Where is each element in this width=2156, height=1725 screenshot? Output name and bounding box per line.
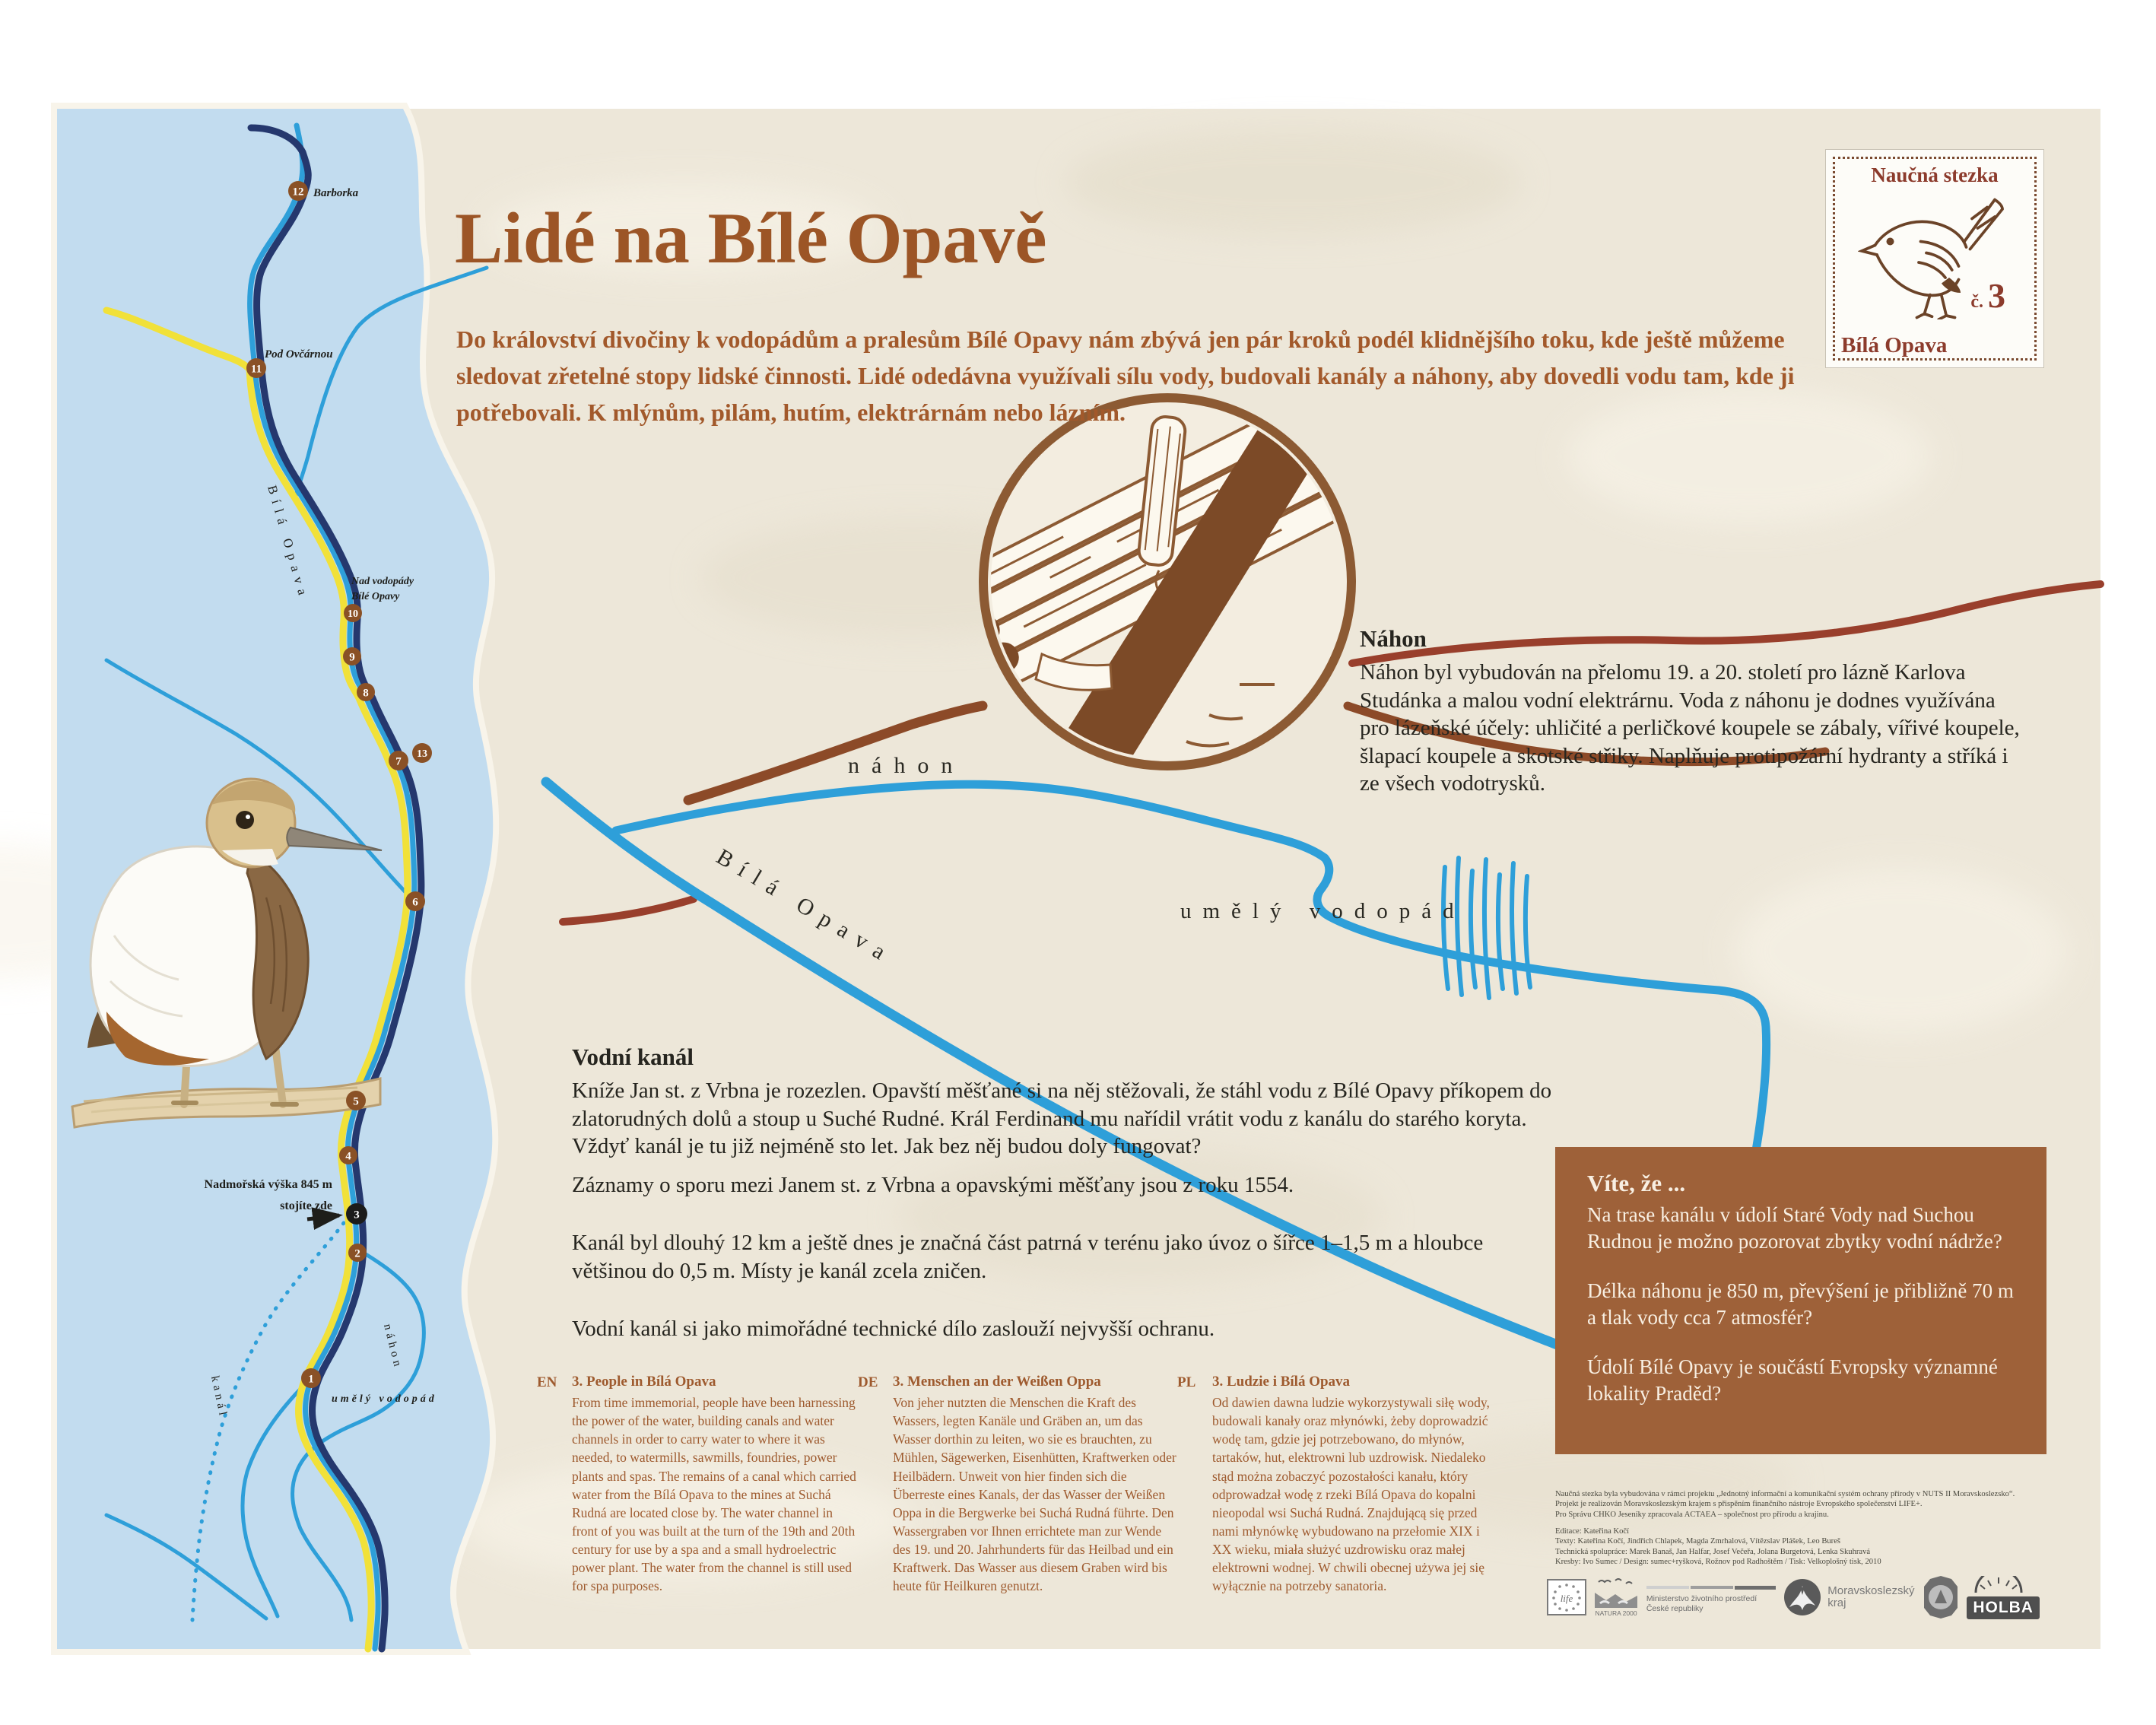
- credits-line: Pro Správu CHKO Jeseníky zpracovala ACTA…: [1555, 1510, 2057, 1520]
- translation-heading-de: 3. Menschen an der Weißen Oppa: [893, 1374, 1177, 1390]
- map-label-barborka: Barborka: [313, 187, 359, 199]
- life-logo-text: life: [1561, 1593, 1573, 1604]
- stop-number: 12: [293, 186, 304, 198]
- translation-column-en: EN 3. People in Bílá Opava From time imm…: [537, 1374, 856, 1596]
- mzp-logo-line2: České republiky: [1646, 1604, 1776, 1614]
- intro-paragraph: Do království divočiny k vodopádům a pra…: [456, 321, 1818, 430]
- lang-code-pl: PL: [1177, 1374, 1195, 1391]
- translation-heading-pl: 3. Ludzie i Bílá Opava: [1212, 1374, 1497, 1390]
- stop-number: 6: [412, 896, 418, 908]
- holba-logo: HOLBA: [1967, 1576, 2040, 1619]
- stop-number: 13: [417, 748, 427, 760]
- sketch-label-nahon: náhon: [848, 753, 964, 778]
- translation-heading-en: 3. People in Bílá Opava: [572, 1374, 856, 1390]
- stamp-number-value: 3: [1988, 276, 2005, 315]
- vodni-kanal-paragraph-1: Kníže Jan st. z Vrbna je rozezlen. Opavš…: [572, 1077, 1557, 1161]
- map-stop-6: 6: [405, 891, 425, 911]
- stamp-river-name: Bílá Opava: [1841, 333, 1947, 358]
- credits-line: Naučná stezka byla vybudována v rámci pr…: [1555, 1489, 2057, 1499]
- stop-number: 1: [308, 1373, 314, 1385]
- msk-logo-line1: Moravskoslezský: [1827, 1585, 1914, 1597]
- trail-stamp: Naučná stezka č. 3 Bílá Opava: [1825, 149, 2044, 368]
- mzp-logo-line1: Ministerstvo životního prostředí: [1646, 1594, 1776, 1604]
- chko-jeseniky-seal: [1921, 1574, 1961, 1620]
- credits-line: Technická spolupráce: Marek Banaš, Jan H…: [1555, 1547, 2057, 1557]
- stop-number: 5: [353, 1095, 359, 1107]
- trail-info-panel: 12 11 10 9 8 7 13 6 5 4 3 2 1 Barborka P…: [0, 0, 2156, 1725]
- map-stop-8: 8: [357, 683, 375, 701]
- map-stop-11: 11: [246, 358, 266, 378]
- nahon-body: Náhon byl vybudován na přelomu 19. a 20.…: [1360, 659, 2021, 798]
- natura-logo-text: NATURA 2000: [1596, 1609, 1637, 1617]
- map-stop-9: 9: [343, 647, 361, 666]
- map-stop-7: 7: [389, 751, 408, 770]
- life-logo: life: [1547, 1579, 1586, 1615]
- map-stop-13: 13: [412, 743, 432, 763]
- vodni-kanal-heading: Vodní kanál: [572, 1044, 1557, 1071]
- stop-number: 9: [349, 651, 355, 663]
- holba-logo-text: HOLBA: [1967, 1596, 2040, 1619]
- nahon-heading: Náhon: [1360, 625, 2021, 653]
- partner-logos-row: life NATURA 2000 Ministerstvo životního …: [1547, 1571, 2040, 1623]
- stop-number: 11: [251, 363, 262, 375]
- translation-body-en: From time immemorial, people have been h…: [572, 1393, 856, 1596]
- stop-number: 4: [345, 1150, 351, 1162]
- vodni-kanal-paragraph-3: Kanál byl dlouhý 12 km a ještě dnes je z…: [572, 1229, 1557, 1285]
- map-label-pod-ovcarnou: Pod Ovčárnou: [265, 348, 333, 361]
- map-stop-10: 10: [344, 604, 362, 622]
- natura-2000-logo: NATURA 2000: [1592, 1577, 1640, 1617]
- nahon-section: Náhon Náhon byl vybudován na přelomu 19.…: [1360, 625, 2021, 798]
- did-you-know-q1: Na trase kanálu v údolí Staré Vody nad S…: [1587, 1202, 2016, 1255]
- map-stop-12: 12: [288, 181, 308, 201]
- stop-number: 8: [363, 687, 369, 699]
- credits-block: Naučná stezka byla vybudována v rámci pr…: [1555, 1489, 2057, 1567]
- lang-code-de: DE: [858, 1374, 878, 1391]
- map-stop-3-you-are-here: 3: [346, 1203, 367, 1225]
- did-you-know-q2: Délka náhonu je 850 m, převýšení je přib…: [1587, 1278, 2016, 1331]
- mzp-logo: Ministerstvo životního prostředí České r…: [1646, 1580, 1776, 1614]
- stop-number: 7: [395, 755, 402, 767]
- sketch-label-umely-vodopad: umělý vodopád: [1180, 899, 1465, 923]
- map-stop-1: 1: [301, 1368, 321, 1388]
- map-stop-2: 2: [348, 1244, 367, 1262]
- map-label-umely-vodopad: umělý vodopád: [332, 1393, 437, 1405]
- map-label-nad-vodopady-2: Bílé Opavy: [351, 591, 400, 602]
- stop-number: 3: [354, 1209, 360, 1221]
- stop-number: 2: [354, 1247, 360, 1260]
- credits-line: Projekt je realizován Moravskoslezským k…: [1555, 1499, 2057, 1509]
- translation-body-pl: Od dawien dawna ludzie wykorzystywali si…: [1212, 1393, 1497, 1596]
- did-you-know-box: Víte, že ... Na trase kanálu v údolí Sta…: [1555, 1147, 2046, 1454]
- page-title: Lidé na Bílé Opavě: [455, 196, 1047, 280]
- vodni-kanal-section: Vodní kanál Kníže Jan st. z Vrbna je roz…: [572, 1044, 1557, 1343]
- lang-code-en: EN: [537, 1374, 557, 1391]
- did-you-know-q3: Údolí Bílé Opavy je součástí Evropsky vý…: [1587, 1354, 2016, 1407]
- map-label-altitude: Nadmořská výška 845 m: [205, 1178, 333, 1191]
- map-label-you-are-here: stojíte zde: [280, 1199, 332, 1212]
- map-label-nad-vodopady-1: Nad vodopády: [351, 576, 414, 587]
- map-stop-5: 5: [346, 1091, 366, 1110]
- credits-line: Kresby: Ivo Sumec / Design: sumec+ryškov…: [1555, 1557, 2057, 1567]
- stop-number: 10: [348, 608, 358, 620]
- vodni-kanal-paragraph-2: Záznamy o sporu mezi Janem st. z Vrbna a…: [572, 1171, 1557, 1199]
- stamp-title: Naučná stezka: [1826, 164, 2043, 187]
- did-you-know-heading: Víte, že ...: [1587, 1170, 2016, 1197]
- vodni-kanal-paragraph-4: Vodní kanál si jako mimořádné technické …: [572, 1315, 1557, 1343]
- msk-logo-line2: kraj: [1827, 1597, 1914, 1609]
- stamp-number-prefix: č.: [1970, 292, 1983, 312]
- stamp-number: č. 3: [1970, 275, 2005, 316]
- credits-line: Editace: Kateřina Kočí: [1555, 1526, 2057, 1536]
- credits-line: Texty: Kateřina Kočí, Jindřich Chlapek, …: [1555, 1536, 2057, 1546]
- translation-body-de: Von jeher nutzten die Menschen die Kraft…: [893, 1393, 1177, 1596]
- translation-column-de: DE 3. Menschen an der Weißen Oppa Von je…: [858, 1374, 1177, 1596]
- translation-column-pl: PL 3. Ludzie i Bílá Opava Od dawien dawn…: [1177, 1374, 1497, 1596]
- map-stop-4: 4: [339, 1146, 357, 1164]
- msk-logo: Moravskoslezský kraj: [1782, 1577, 1914, 1618]
